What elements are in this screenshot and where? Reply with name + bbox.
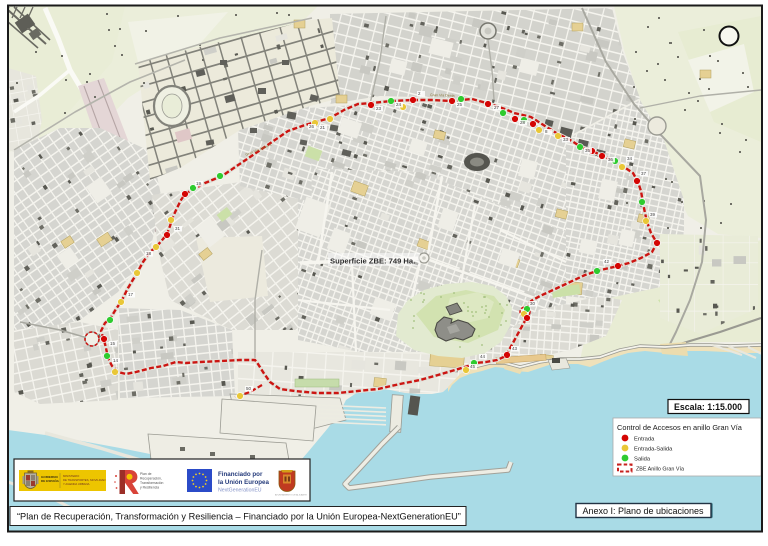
svg-text:28: 28 xyxy=(520,120,526,125)
svg-text:36: 36 xyxy=(608,157,614,162)
svg-text:27: 27 xyxy=(494,105,500,110)
svg-text:42: 42 xyxy=(604,259,610,264)
svg-text:Plan de: Plan de xyxy=(140,472,152,476)
svg-text:Y AGENDA URBANA: Y AGENDA URBANA xyxy=(63,482,90,486)
svg-text:23: 23 xyxy=(376,106,382,111)
svg-text:Control de Accesos en anillo G: Control de Accesos en anillo Gran Vía xyxy=(617,423,743,432)
svg-text:“Plan de Recuperación, Transfo: “Plan de Recuperación, Transformación y … xyxy=(17,512,461,522)
svg-text:AYUNTAMIENTO DE ALICANTE: AYUNTAMIENTO DE ALICANTE xyxy=(275,494,307,497)
svg-text:ZBE Anillo Gran Vía: ZBE Anillo Gran Vía xyxy=(636,467,684,473)
svg-text:39: 39 xyxy=(650,212,656,217)
svg-text:Superficie ZBE: 749 Ha.: Superficie ZBE: 749 Ha. xyxy=(330,257,415,266)
svg-text:15: 15 xyxy=(110,341,116,346)
svg-text:Gran Via Denia: Gran Via Denia xyxy=(430,93,455,98)
svg-text:Financiado por: Financiado por xyxy=(218,471,263,478)
svg-text:33: 33 xyxy=(563,137,569,142)
svg-text:17: 17 xyxy=(128,292,134,297)
svg-text:37: 37 xyxy=(641,171,647,176)
svg-text:31: 31 xyxy=(175,226,181,231)
svg-text:NextGenerationEU: NextGenerationEU xyxy=(218,488,262,494)
svg-text:Transformación: Transformación xyxy=(140,481,164,485)
svg-text:35: 35 xyxy=(585,148,591,153)
svg-text:24: 24 xyxy=(396,102,402,107)
svg-text:Salida: Salida xyxy=(634,457,651,463)
svg-text:Escala: 1:15.000: Escala: 1:15.000 xyxy=(674,402,742,412)
svg-text:44: 44 xyxy=(480,354,486,359)
svg-text:14: 14 xyxy=(113,358,119,363)
svg-text:45: 45 xyxy=(470,364,476,369)
svg-text:34: 34 xyxy=(627,156,633,161)
svg-text:Recuperación,: Recuperación, xyxy=(140,477,162,481)
svg-text:25: 25 xyxy=(457,102,463,107)
svg-text:21: 21 xyxy=(320,125,326,130)
svg-text:19: 19 xyxy=(196,181,202,186)
svg-text:26: 26 xyxy=(309,124,315,129)
svg-text:18: 18 xyxy=(146,251,152,256)
svg-text:43: 43 xyxy=(512,346,518,351)
svg-text:Entrada: Entrada xyxy=(634,437,655,443)
svg-text:y Resiliencia: y Resiliencia xyxy=(140,486,159,490)
svg-text:la Unión Europea: la Unión Europea xyxy=(218,479,269,486)
svg-text:Anexo I: Plano de ubicaciones: Anexo I: Plano de ubicaciones xyxy=(582,506,704,516)
svg-text:Entrada-Salida: Entrada-Salida xyxy=(634,447,673,453)
svg-text:50: 50 xyxy=(246,386,252,391)
svg-text:DE ESPAÑA: DE ESPAÑA xyxy=(41,478,60,483)
svg-text:30: 30 xyxy=(530,301,536,306)
